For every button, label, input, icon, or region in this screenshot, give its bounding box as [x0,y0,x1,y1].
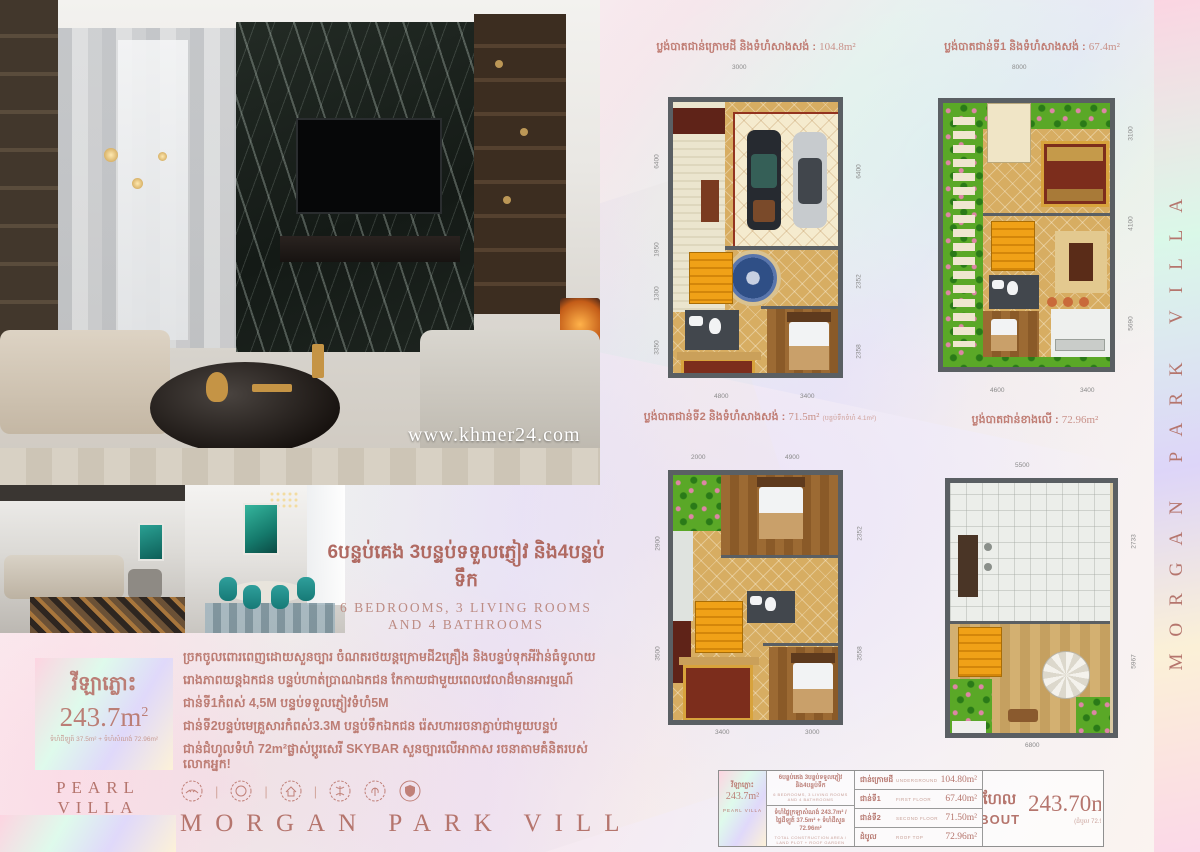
gold-sofa [679,657,759,665]
paragraph-line: ជាន់ទី2បន្ទប់មេគ្រួសារកំពស់3.3M បន្ទប់ទឹ… [183,719,613,734]
carpet-floor [0,448,600,485]
chandelier-globe [132,178,143,189]
sheer-curtain [118,40,188,340]
watermark-text: www.khmer24.com [408,424,581,447]
brand-wordmark: MORGAN PARK VILL [180,810,584,838]
dim-label: 6400 [855,164,862,178]
villa-total-area: 243.7m2 [35,702,173,733]
villa-area-badge: វីឡាភ្លោះ 243.7m2 ទំហំដីឡូត៍ 37.5m² + ទំ… [35,658,173,770]
bed-blanket [789,346,829,370]
wall [983,213,1115,216]
entry-porch [987,103,1031,163]
parasol [1042,651,1090,699]
dim-label: 4900 [785,454,799,461]
table-row: ជាន់ទី1 FIRST FLOOR 67.40m² [855,790,982,809]
plan-label-value: 67.4m² [1089,41,1120,53]
stepping-stones [953,117,975,347]
dining-chair [271,585,289,609]
plan-label-value: 71.5m² [788,411,819,423]
laurel-badge-icon [180,779,204,803]
about-khmer: ប្រហែល [983,790,1020,812]
description-paragraph: ច្រកចូលពោរពេញដោយសួនច្បារ ចំណតរថយន្តក្រោម… [183,650,613,780]
terrace-garden [1076,697,1110,738]
dim-label: 2000 [691,454,705,461]
table-total-cell: ប្រហែល ABOUT 243.70m2 (ដំបូល 72.96m²) [983,771,1101,846]
stool [1047,297,1057,307]
toilet [1007,281,1018,295]
about-english: ABOUT [983,812,1020,827]
dim-label: 2733 [1130,534,1137,548]
side-brand-strip: MORGAN PARK VILLA [1154,0,1200,852]
brochure-page: www.khmer24.com 6បន្ទប់គេង 3បន្ទប់ទទួលភ្… [0,0,1200,852]
car-cabin [798,158,822,204]
table-rows-cell: ជាន់ក្រោមដី UNDERGROUND 104.80m² ជាន់ទី1… [855,771,983,846]
sink [750,596,762,605]
desc-row-2: ទំហំផ្ទៃក្រឡាសំណង់ 243.7m² / ផ្ទៃដីឡូត៍ … [767,806,854,846]
dim-label: 3350 [654,340,661,354]
ceiling-cove [0,485,185,501]
table-row: ជាន់ទី2 SECOND FLOOR 71.50m² [855,809,982,828]
staircase [695,601,743,653]
paragraph-line: រោងភាពយន្តឯកជន បន្ទប់ហាត់ប្រាណឯកជន កែកាយ… [183,673,613,688]
house-badge-icon [279,779,303,803]
headline-block: 6បន្ទប់គេង 3បន្ទប់ទទួលភ្ញៀវ និង4បន្ទប់ទឹ… [325,540,607,633]
kitchen [1051,309,1115,357]
bedroom [983,311,1039,357]
tv-console [280,236,460,262]
area-spec-table: វីឡាភ្លោះ 243.7m² PEARL VILLA 6បន្ទប់គេង… [718,770,1104,847]
row-english: ROOF TOP [896,835,945,840]
total-area: 243.70m2 [1028,791,1101,817]
chandelier-globe [158,152,167,161]
plan-first-floor-label: ប្លង់បាតជាន់ទី1 និងទំហំសាងសង់ : 67.4m² [912,40,1152,56]
sofa [4,555,124,599]
armchair [128,569,162,599]
plan-second-floor: 2000 4900 2900 3500 2352 3558 3400 3000 [635,440,883,740]
dining-chair [297,577,315,601]
about-labels: ប្រហែល ABOUT [983,790,1020,827]
plan-label-note: (បន្ទប់ទឹកទំហំ 4.1m²) [823,415,877,422]
thumb-area: 243.7m² [719,791,766,802]
bar-stool [984,563,992,571]
garage [733,112,840,250]
bedroom [767,308,843,378]
paragraph-line: ច្រកចូលពោរពេញដោយសួនច្បារ ចំណតរថយន្តក្រោម… [183,650,613,665]
plan-label-text: ប្លង់បាតជាន់ទី1 និងទំហំសាងសង់ : [944,41,1086,53]
dark-car [747,130,781,230]
dim-label: 5690 [1127,316,1134,330]
lounge-photo [0,485,185,633]
decor-object [503,196,511,204]
toilet [765,597,776,611]
living-room-photo: www.khmer24.com [0,0,600,485]
shield-badge-icon [398,779,422,803]
row-value: 104.80m² [941,775,977,785]
dim-label: 3500 [655,646,662,660]
wall [725,246,840,250]
plan-basement: 3000 6400 1950 1300 3350 6400 2352 2358 … [632,58,880,406]
side-walkway [1110,483,1118,738]
badge-separator: | [314,784,317,799]
total-block: 243.70m2 (ដំបូល 72.96m²) [1028,791,1101,826]
plan-first-floor: 8000 3100 4100 5690 4600 3400 [912,60,1150,400]
dining-room-photo [185,485,345,633]
wall [763,643,843,646]
gold-vase [206,372,228,402]
bed-blanket [991,335,1017,351]
stool [1063,297,1073,307]
gold-sofa [677,352,761,360]
row-khmer: ដំបូល [860,832,896,843]
badge-separator: | [264,784,267,799]
sofa [1047,189,1103,201]
villa-name: PEARL VILLA [18,778,178,818]
dim-label: 3558 [856,646,863,660]
headboard [757,477,805,487]
dim-label: 8000 [1012,64,1026,71]
display-shelves [474,14,566,314]
dim-label: 3400 [800,393,814,400]
row-english: SECOND FLOOR [896,816,945,821]
table-thumb-cell: វីឡាភ្លោះ 243.7m² PEARL VILLA [719,771,767,846]
teal-artwork [138,523,164,561]
toilet [709,318,721,334]
table-desc-cell: 6បន្ទប់គេង 3បន្ទប់ទទួលភ្ញៀវ និង4បន្ទប់ទឹ… [767,771,855,846]
wall [950,621,1110,624]
dining-rug [205,603,335,633]
total-note: (ដំបូល 72.96m²) [1028,817,1101,826]
row-english: FIRST FLOOR [896,797,945,802]
plan-second-floor-label: ប្លង់បាតជាន់ទី2 និងទំហំសាងសង់ : 71.5m² (… [630,410,890,426]
plan-label-value: 72.96m² [1062,414,1099,426]
staircase [958,627,1002,677]
sofa-left [0,330,170,434]
dim-label: 2352 [855,274,862,288]
plan-label-text: ប្លង់បាតជាន់ខាងលើ : [972,414,1059,426]
console-table [701,180,719,222]
desc1-english: 6 BEDROOMS, 3 LIVING ROOMS AND 4 BATHROO… [770,792,851,802]
dim-label: 5967 [1130,654,1137,668]
paragraph-line: ជាន់ជំហូលទំហំ 72m²ផ្លាស់ប្តូរសេរី SKYBAR… [183,742,613,772]
row-english: UNDERGROUND [896,778,941,783]
seal-badge-icon [229,779,253,803]
patterned-rug [30,597,185,633]
dim-label: 4600 [990,387,1004,394]
row-khmer: ជាន់ក្រោមដី [860,775,896,786]
dim-label: 2900 [655,536,662,550]
sofa [1047,147,1103,161]
dim-label: 3400 [715,729,729,736]
staircase [689,252,733,304]
plan-label-text: ប្លង់បាតជាន់ក្រោមដី និងទំហំសាងសង់ : [656,41,816,53]
headline-english-2: AND 4 BATHROOMS [325,617,607,633]
bathroom [685,310,739,350]
side-walk [673,531,693,621]
plan-label-text: ប្លង់បាតជាន់ទី2 និងទំហំសាងសង់ : [644,411,786,423]
plan-basement-label: ប្លង់បាតជាន់ក្រោមដី និងទំហំសាងសង់ : 104.… [630,40,882,56]
badge-separator: | [215,784,218,799]
villa-type-khmer: វីឡាភ្លោះ [35,670,173,700]
gold-tray [252,384,292,392]
dining-chair [219,577,237,601]
chandelier-globe [104,148,118,162]
row-value: 72.96m² [945,832,977,842]
dim-label: 1950 [654,242,661,256]
plan-roof-label: ប្លង់បាតជាន់ខាងលើ : 72.96m² [915,413,1155,429]
sink [992,280,1004,289]
desc2-english: TOTAL CONSTRUCTION AREA / LAND PLOT + RO… [770,835,851,845]
round-rug [725,250,781,306]
bar-stool [984,543,992,551]
dim-label: 6800 [1025,742,1039,749]
dim-label: 2352 [856,526,863,540]
dim-label: 3000 [732,64,746,71]
decor-object [520,128,528,136]
gold-statue [312,344,324,378]
dim-label: 6400 [654,154,661,168]
row-value: 67.40m² [945,794,977,804]
bathroom [989,275,1039,309]
lounge-chair [1008,709,1038,722]
bedroom [769,647,843,725]
bar-counter [958,535,978,597]
bathroom [747,591,795,623]
stool [1079,297,1089,307]
row-khmer: ជាន់ទី2 [860,813,896,824]
headline-english-1: 6 BEDROOMS, 3 LIVING ROOMS [325,600,607,616]
villa-area-subline: ទំហំដីឡូត៍ 37.5m² + ទំហំសំណង់ 72.96m² [35,736,173,745]
balcony-garden [673,475,721,531]
plan-label-value: 104.8m² [819,41,856,53]
bed-blanket [759,513,803,539]
thumb-name: PEARL VILLA [719,808,766,813]
paragraph-line: ជាន់ទី1កំពស់ 4,5M បន្ទប់ទទួលភ្ញៀវទំហំ5M [183,696,613,711]
holo-corner-panel [0,815,176,852]
dining-rug [1055,231,1107,293]
amenity-badges-row: | | | [180,779,422,803]
plan-first-floor-drawing [938,98,1115,372]
cabinet-row [673,108,725,134]
row-value: 71.50m² [945,813,977,823]
car-interior [753,200,775,222]
table-row: ដំបូល ROOF TOP 72.96m² [855,828,982,846]
dim-label: 3000 [805,729,819,736]
vertical-brand-text: MORGAN PARK VILLA [1166,182,1188,671]
tv-screen [296,118,442,214]
master-bedroom [721,475,843,555]
patio-pad [952,721,986,738]
table-row: ជាន់ក្រោមដី UNDERGROUND 104.80m² [855,771,982,790]
dining-table [229,581,305,603]
headline-khmer: 6បន្ទប់គេង 3បន្ទប់ទទួលភ្ញៀវ និង4បន្ទប់ទឹ… [325,540,607,596]
dim-label: 1300 [654,286,661,300]
bed-blanket [793,689,833,713]
plan-roof-drawing [945,478,1118,738]
plan-second-floor-drawing [668,470,843,725]
thumb-title: វីឡាភ្លោះ [719,781,766,791]
desc-row-1: 6បន្ទប់គេង 3បន្ទប់ទទួលភ្ញៀវ និង4បន្ទប់ទឹ… [767,771,854,806]
silver-car [793,132,827,228]
plan-basement-drawing [668,97,843,378]
dining-chair [243,585,261,609]
wall [721,555,843,558]
crest-badge-icon [328,779,352,803]
leaf-badge-icon [363,779,387,803]
row-khmer: ជាន់ទី1 [860,794,896,805]
dim-label: 2358 [855,344,862,358]
decor-object [495,60,503,68]
desc1-khmer: 6បន្ទប់គេង 3បន្ទប់ទទួលភ្ញៀវ និង4បន្ទប់ទឹ… [770,774,851,790]
sink [689,316,703,326]
dining-table [1069,243,1093,281]
dim-label: 3100 [1127,126,1134,140]
plan-roof: 5500 2733 5967 6800 [915,448,1155,753]
desc2-khmer: ទំហំផ្ទៃក្រឡាសំណង់ 243.7m² / ផ្ទៃដីឡូត៍ … [770,809,851,833]
dim-label: 3400 [1080,387,1094,394]
family-room-rug [683,665,753,721]
teal-portrait [243,503,279,555]
living-rug [681,358,755,378]
kitchen-counter [1055,339,1105,351]
headboard [787,312,831,322]
car-windshield [751,154,777,188]
dim-label: 4800 [714,393,728,400]
staircase [991,221,1035,271]
headboard [791,653,835,663]
dim-label: 4100 [1127,216,1134,230]
wall [761,306,843,309]
dim-label: 5500 [1015,462,1029,469]
